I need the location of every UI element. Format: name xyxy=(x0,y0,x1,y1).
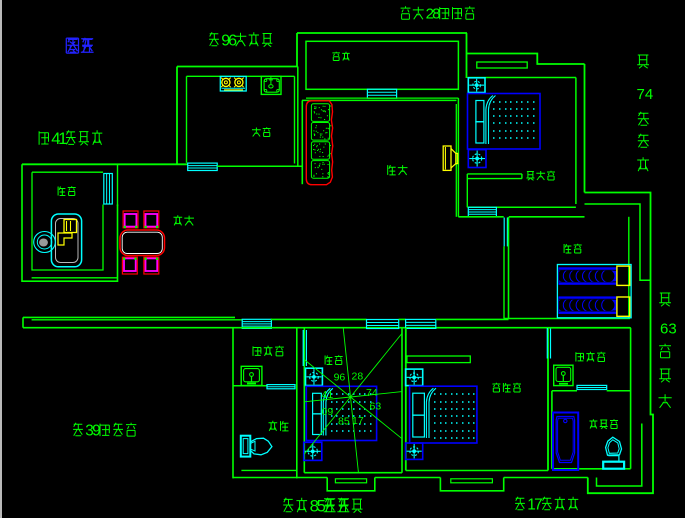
svg-text:5: 5 xyxy=(317,497,326,516)
svg-text:85: 85 xyxy=(338,415,350,427)
svg-text:63: 63 xyxy=(660,321,677,338)
svg-text:74: 74 xyxy=(637,86,654,103)
svg-text:28: 28 xyxy=(352,371,364,383)
svg-text:74: 74 xyxy=(366,387,378,399)
svg-text:6: 6 xyxy=(228,32,237,50)
svg-text:17: 17 xyxy=(352,415,364,427)
svg-text:1: 1 xyxy=(58,129,67,148)
svg-text:41: 41 xyxy=(322,389,334,401)
svg-text:96: 96 xyxy=(334,372,346,384)
svg-text:63: 63 xyxy=(370,401,382,413)
svg-text:09: 09 xyxy=(322,406,334,418)
svg-text:7: 7 xyxy=(534,496,543,513)
svg-text:9: 9 xyxy=(92,422,101,439)
